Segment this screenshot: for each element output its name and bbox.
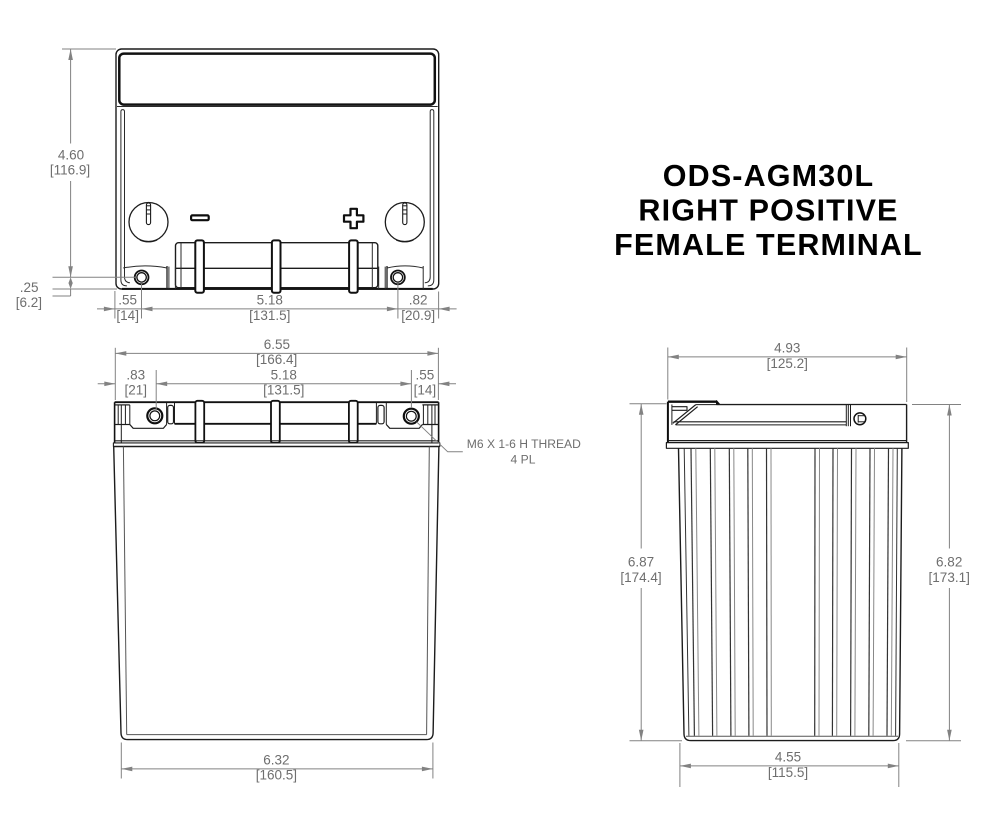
svg-text:6.55: 6.55 [264, 337, 290, 352]
svg-text:5.18: 5.18 [257, 293, 283, 308]
svg-text:[14]: [14] [116, 308, 139, 323]
svg-text:.25: .25 [20, 280, 39, 295]
svg-text:[116.9]: [116.9] [50, 163, 90, 178]
svg-text:.82: .82 [409, 293, 428, 308]
svg-text:4.55: 4.55 [775, 750, 801, 765]
svg-text:6.87: 6.87 [628, 555, 654, 570]
svg-text:[131.5]: [131.5] [263, 383, 304, 398]
svg-text:[160.5]: [160.5] [256, 768, 297, 783]
svg-text:[174.4]: [174.4] [620, 570, 661, 585]
svg-text:ODS-AGM30L: ODS-AGM30L [663, 159, 874, 193]
svg-text:[6.2]: [6.2] [16, 295, 42, 310]
svg-text:M6 X 1-6 H THREAD: M6 X 1-6 H THREAD [467, 437, 581, 451]
svg-text:[173.1]: [173.1] [929, 570, 970, 585]
svg-text:6.32: 6.32 [263, 752, 289, 767]
svg-text:[115.5]: [115.5] [768, 765, 808, 780]
svg-text:[131.5]: [131.5] [249, 308, 290, 323]
svg-text:[125.2]: [125.2] [767, 356, 808, 371]
svg-text:RIGHT POSITIVE: RIGHT POSITIVE [638, 193, 898, 227]
svg-text:.55: .55 [416, 367, 435, 382]
svg-text:6.82: 6.82 [936, 555, 962, 570]
svg-text:[21]: [21] [125, 383, 148, 398]
svg-text:4.60: 4.60 [58, 147, 84, 162]
svg-text:[20.9]: [20.9] [401, 308, 435, 323]
svg-text:FEMALE TERMINAL: FEMALE TERMINAL [614, 228, 923, 262]
svg-text:4 PL: 4 PL [511, 452, 536, 466]
svg-text:.83: .83 [126, 367, 145, 382]
svg-text:.55: .55 [118, 293, 137, 308]
svg-text:5.18: 5.18 [271, 367, 297, 382]
svg-text:[14]: [14] [414, 383, 437, 398]
svg-text:4.93: 4.93 [774, 341, 800, 356]
svg-text:[166.4]: [166.4] [256, 352, 297, 367]
